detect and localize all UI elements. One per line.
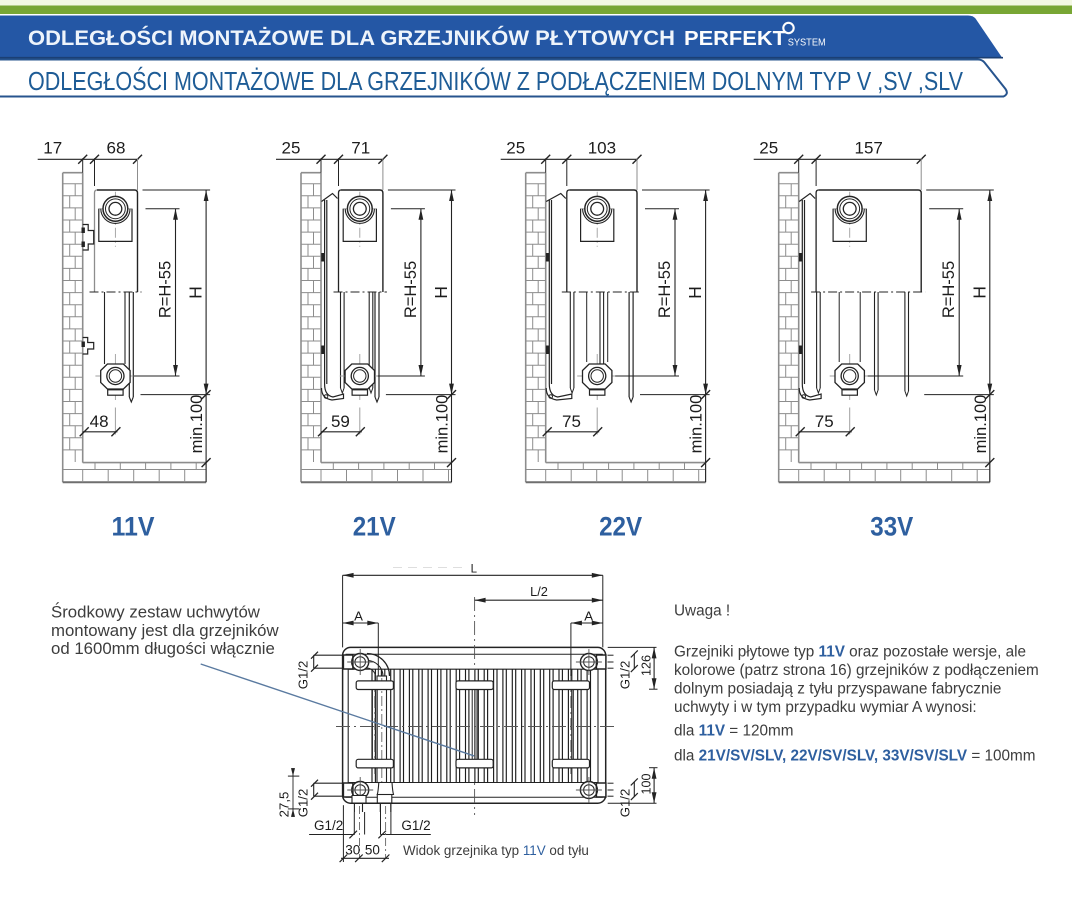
- svg-text:min.100: min.100: [688, 395, 706, 454]
- svg-text:75: 75: [815, 412, 834, 431]
- svg-text:H: H: [969, 286, 989, 299]
- svg-text:SYSTEM: SYSTEM: [788, 38, 826, 49]
- svg-text:48: 48: [90, 412, 109, 431]
- svg-text:59: 59: [331, 412, 350, 431]
- svg-text:30: 30: [345, 843, 360, 858]
- svg-text:ODLEGŁOŚCI MONTAŻOWE DLA GR: ODLEGŁOŚCI MONTAŻOWE DLA GRZEJNIKÓW PŁYT…: [28, 25, 675, 50]
- svg-text:PERFEKT: PERFEKT: [684, 27, 786, 50]
- svg-text:R=H-55: R=H-55: [402, 261, 420, 318]
- svg-text:G1/2: G1/2: [296, 661, 311, 690]
- svg-text:min.100: min.100: [972, 395, 990, 454]
- svg-text:157: 157: [855, 139, 883, 158]
- svg-text:22V: 22V: [599, 512, 642, 542]
- svg-text:R=H-55: R=H-55: [940, 261, 958, 318]
- svg-text:montowany jest dla grzejników: montowany jest dla grzejników: [51, 621, 279, 640]
- svg-text:100: 100: [640, 773, 654, 794]
- svg-text:25: 25: [282, 139, 301, 158]
- svg-text:H: H: [431, 286, 451, 299]
- svg-text:min.100: min.100: [188, 395, 206, 454]
- svg-text:dla 11V = 120mm: dla 11V = 120mm: [674, 723, 794, 740]
- svg-text:min.100: min.100: [434, 395, 452, 454]
- svg-text:75: 75: [562, 412, 581, 431]
- svg-text:kolorowe (patrz strona 16) grz: kolorowe (patrz strona 16) grzejników z …: [674, 662, 1039, 679]
- svg-text:33V: 33V: [870, 512, 913, 542]
- svg-text:G1/2: G1/2: [401, 818, 430, 833]
- svg-text:71: 71: [351, 139, 370, 158]
- svg-text:25: 25: [506, 139, 525, 158]
- svg-text:126: 126: [640, 655, 654, 676]
- svg-text:50: 50: [365, 843, 380, 858]
- svg-text:ODLEGŁOŚCI MONTAŻOWE DLA GRZEJ: ODLEGŁOŚCI MONTAŻOWE DLA GRZEJNIKÓW Z PO…: [28, 66, 963, 96]
- svg-text:od 1600mm długości włącznie: od 1600mm długości włącznie: [51, 639, 275, 658]
- svg-text:27,5: 27,5: [277, 792, 292, 818]
- svg-text:11V: 11V: [112, 512, 155, 542]
- svg-text:R=H-55: R=H-55: [157, 261, 175, 318]
- svg-text:L: L: [471, 564, 478, 576]
- svg-text:17: 17: [43, 139, 62, 158]
- svg-text:dolnym posiadają z tyłu przysp: dolnym posiadają z tyłu przyspawane fabr…: [674, 681, 1001, 698]
- svg-text:H: H: [685, 286, 705, 299]
- svg-text:Widok grzejnika typ 11V od tył: Widok grzejnika typ 11V od tyłu: [403, 843, 589, 858]
- svg-text:dla 21V/SV/SLV, 22V/SV/SLV, 33: dla 21V/SV/SLV, 22V/SV/SLV, 33V/SV/SLV =…: [674, 748, 1036, 765]
- svg-text:68: 68: [107, 139, 126, 158]
- svg-text:Uwaga !: Uwaga !: [674, 603, 730, 620]
- svg-text:Grzejniki płytowe typ 11V oraz: Grzejniki płytowe typ 11V oraz pozostałe…: [674, 644, 1026, 661]
- svg-text:uchwyty i w tym przypadku wymi: uchwyty i w tym przypadku wymiar A wynos…: [674, 699, 977, 716]
- svg-text:A: A: [354, 608, 363, 623]
- svg-text:21V: 21V: [353, 512, 396, 542]
- svg-text:103: 103: [588, 139, 616, 158]
- svg-text:Środkowy zestaw uchwytów: Środkowy zestaw uchwytów: [51, 603, 261, 622]
- svg-text:H: H: [186, 286, 206, 299]
- svg-text:G1/2: G1/2: [296, 789, 311, 818]
- svg-text:L/2: L/2: [530, 584, 548, 599]
- svg-text:G1/2: G1/2: [618, 661, 633, 690]
- svg-text:G1/2: G1/2: [314, 818, 343, 833]
- svg-text:R=H-55: R=H-55: [656, 261, 674, 318]
- svg-text:A: A: [584, 608, 593, 623]
- svg-text:25: 25: [759, 139, 778, 158]
